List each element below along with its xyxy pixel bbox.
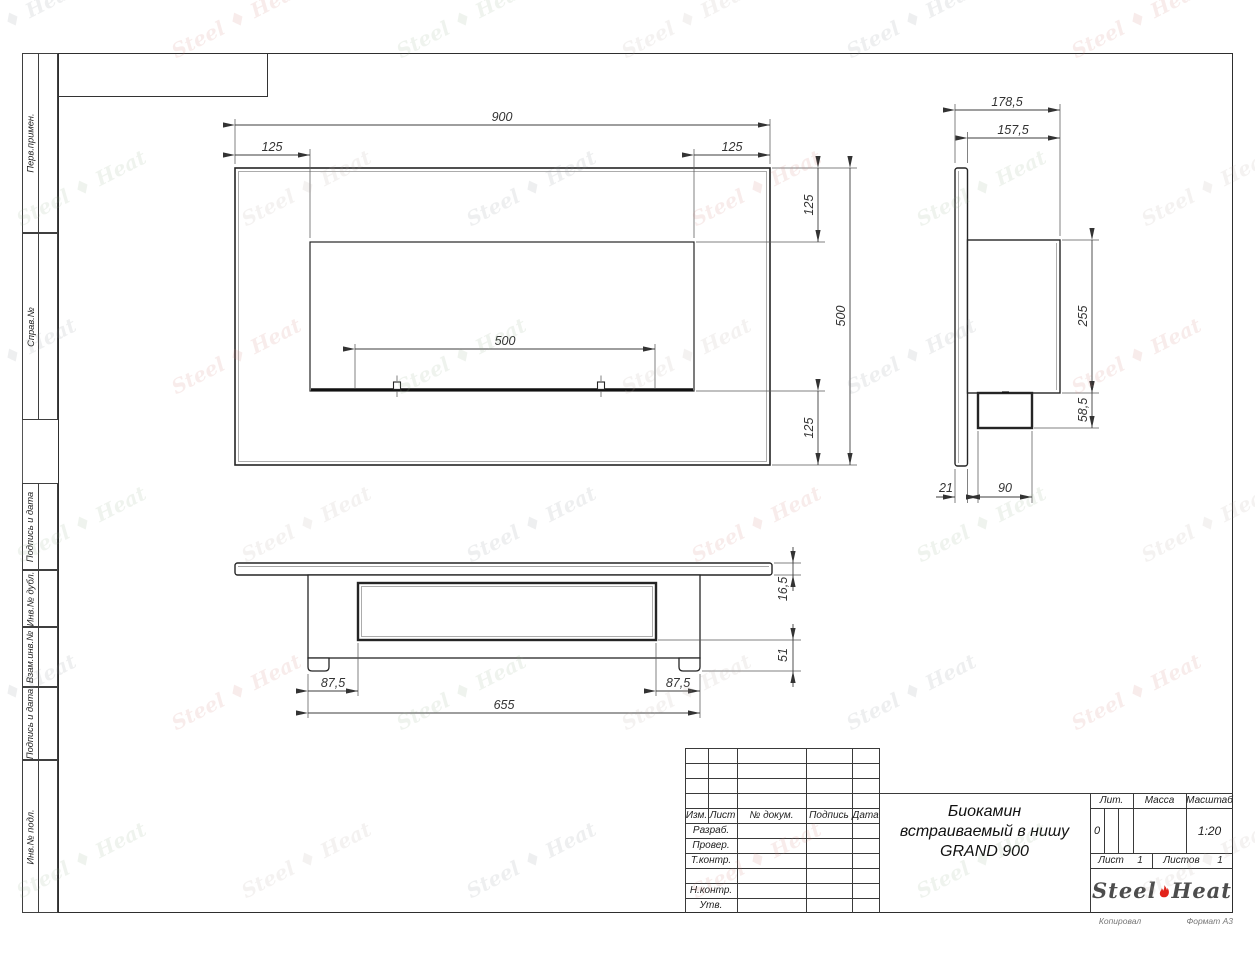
titleblock-line xyxy=(806,748,807,913)
stamp-podpis-data-1: Подпись и дата xyxy=(22,483,58,570)
rev-header-docnum: № докум. xyxy=(737,808,806,823)
titleblock-line xyxy=(1152,853,1153,868)
stamp-divider xyxy=(38,761,39,912)
sig-row-razrab: Разраб. xyxy=(685,823,737,838)
stamp-divider xyxy=(38,688,39,759)
rev-header-izm: Изм. xyxy=(685,808,708,823)
lit-value: 0 xyxy=(1090,808,1104,853)
stamp-divider xyxy=(38,234,39,419)
titleblock-line xyxy=(1118,808,1119,853)
stamp-divider xyxy=(38,484,39,569)
stamp-podpis-data-2: Подпись и дата xyxy=(22,687,58,760)
stamp-sprav-no: Справ.№ xyxy=(22,233,58,420)
logo-heat-text: Heat xyxy=(1171,878,1232,903)
mass-value xyxy=(1133,808,1186,853)
titleblock-line xyxy=(685,748,879,749)
stamp-divider xyxy=(38,54,39,232)
document-title-line2: встраиваемый в нишу xyxy=(900,822,1069,842)
copied-note: Копировал xyxy=(1080,916,1160,926)
document-title: Биокамин встраиваемый в нишу GRAND 900 xyxy=(881,795,1088,869)
sheet-label: Лист xyxy=(1092,853,1130,868)
sig-row-tkontr: Т.контр. xyxy=(685,853,737,868)
mass-label: Масса xyxy=(1133,793,1186,808)
sheets-value: 1 xyxy=(1209,853,1231,868)
scale-label: Масштаб xyxy=(1186,793,1233,808)
company-logo: Steel Heat xyxy=(1092,868,1232,912)
stamp-divider xyxy=(38,628,39,686)
rev-header-podpis: Подпись xyxy=(806,808,852,823)
stamp-label: Инв.№ подл. xyxy=(26,809,36,864)
sheet-frame xyxy=(58,53,1233,913)
stamp-label: Подпись и дата xyxy=(26,688,36,758)
rev-header-data: Дата xyxy=(852,808,879,823)
titleblock-line xyxy=(1104,808,1105,853)
stamp-label: Взам.инв.№ xyxy=(26,631,36,683)
document-title-line1: Биокамин xyxy=(948,802,1021,822)
titleblock-line xyxy=(685,868,879,869)
scale-value: 1:20 xyxy=(1186,808,1233,853)
stamp-inv-podl: Инв.№ подл. xyxy=(22,760,58,913)
titleblock-line xyxy=(852,748,853,913)
blueprint-page: 900 125 125 125 500 125 500 xyxy=(0,0,1255,970)
stamp-label: Перв.примен. xyxy=(26,113,36,172)
sig-row-prover: Провер. xyxy=(685,838,737,853)
titleblock-line xyxy=(685,778,879,779)
stamp-label: Инв.№ дубл. xyxy=(26,571,36,626)
stamp-perv-primen: Перв.примен. xyxy=(22,53,58,233)
stamp-label: Справ.№ xyxy=(26,307,36,347)
titleblock-line xyxy=(685,763,879,764)
rev-header-list: Лист xyxy=(708,808,737,823)
titleblock-line xyxy=(737,748,738,913)
sig-row-nkontr: Н.контр. xyxy=(685,883,737,898)
top-left-designation-box xyxy=(58,53,268,97)
stamp-inv-dubl: Инв.№ дубл. xyxy=(22,570,58,627)
sig-row-utv: Утв. xyxy=(685,898,737,913)
titleblock-line xyxy=(879,748,880,913)
sheet-value: 1 xyxy=(1130,853,1150,868)
stamp-divider xyxy=(38,571,39,626)
sheets-label: Листов xyxy=(1154,853,1209,868)
stamp-label: Подпись и дата xyxy=(26,491,36,561)
lit-label: Лит. xyxy=(1090,793,1133,808)
stamp-vzam-inv: Взам.инв.№ xyxy=(22,627,58,687)
flame-icon xyxy=(1158,877,1171,903)
format-note: Формат А3 xyxy=(1178,916,1233,926)
logo-steel-text: Steel xyxy=(1092,878,1157,903)
document-title-line3: GRAND 900 xyxy=(940,842,1029,862)
